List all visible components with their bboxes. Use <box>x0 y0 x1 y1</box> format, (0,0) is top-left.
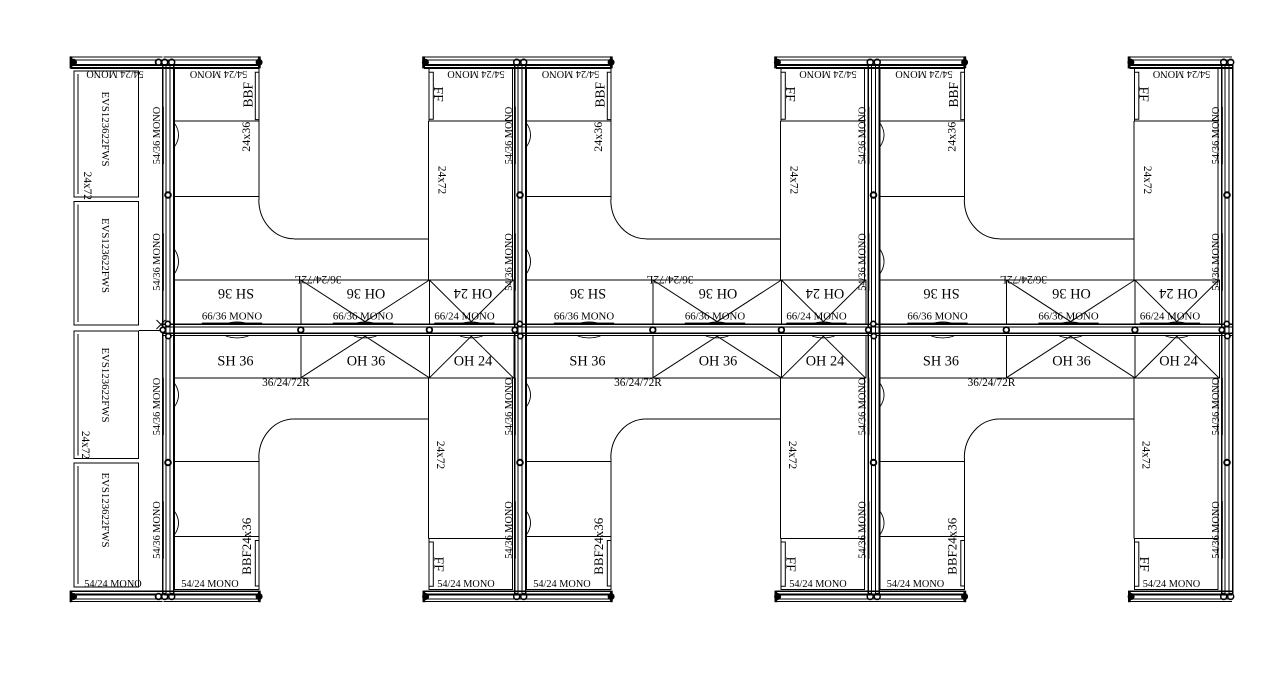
svg-text:54/24 MONO: 54/24 MONO <box>86 68 144 79</box>
svg-text:24x72: 24x72 <box>79 431 91 460</box>
svg-text:EVS123622FWS: EVS123622FWS <box>99 473 111 548</box>
svg-text:54/24 MONO: 54/24 MONO <box>84 579 142 590</box>
svg-text:EVS123622FWS: EVS123622FWS <box>99 348 111 423</box>
svg-text:EVS123622FWS: EVS123622FWS <box>99 218 111 293</box>
svg-text:EVS123622FWS: EVS123622FWS <box>99 92 111 167</box>
svg-text:24x72: 24x72 <box>81 172 93 201</box>
